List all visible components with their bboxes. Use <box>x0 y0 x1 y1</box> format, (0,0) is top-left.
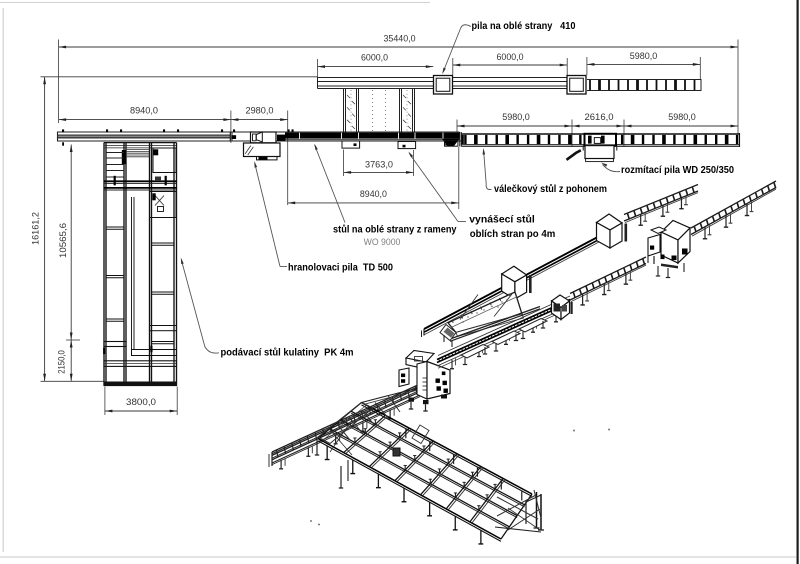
svg-text:WO 9000: WO 9000 <box>364 237 401 248</box>
svg-text:hranolovaci pila TD 500: hranolovaci pila TD 500 <box>288 263 393 274</box>
svg-text:3800,0: 3800,0 <box>126 397 156 408</box>
svg-text:2980,0: 2980,0 <box>246 105 274 116</box>
svg-text:10565,6: 10565,6 <box>58 223 69 258</box>
svg-text:2616,0: 2616,0 <box>585 112 614 123</box>
svg-text:rozmítací pila WD 250/350: rozmítací pila WD 250/350 <box>621 165 734 176</box>
svg-text:8940,0: 8940,0 <box>130 105 158 116</box>
svg-text:5980,0: 5980,0 <box>502 112 530 123</box>
svg-text:pila na oblé strany 410: pila na oblé strany 410 <box>472 21 576 32</box>
svg-text:stůl na oblé strany z rameny: stůl na oblé strany z rameny <box>333 223 457 235</box>
svg-text:6000,0: 6000,0 <box>361 53 388 64</box>
svg-text:5980,0: 5980,0 <box>668 112 696 123</box>
svg-text:2150,0: 2150,0 <box>57 350 68 374</box>
svg-text:válečkový stůl z pohonem: válečkový stůl z pohonem <box>494 183 607 195</box>
svg-text:35440,0: 35440,0 <box>384 34 416 45</box>
svg-text:3763,0: 3763,0 <box>365 159 393 170</box>
svg-text:oblích stran po 4m: oblích stran po 4m <box>470 229 556 240</box>
svg-text:16161,2: 16161,2 <box>31 212 42 245</box>
svg-text:vynášecí stůl: vynášecí stůl <box>469 214 535 226</box>
svg-text:5980,0: 5980,0 <box>630 51 658 62</box>
svg-text:6000,0: 6000,0 <box>497 52 524 63</box>
svg-text:8940,0: 8940,0 <box>360 189 387 200</box>
svg-text:podávací stůl kulatiny PK 4m: podávací stůl kulatiny PK 4m <box>221 347 354 359</box>
